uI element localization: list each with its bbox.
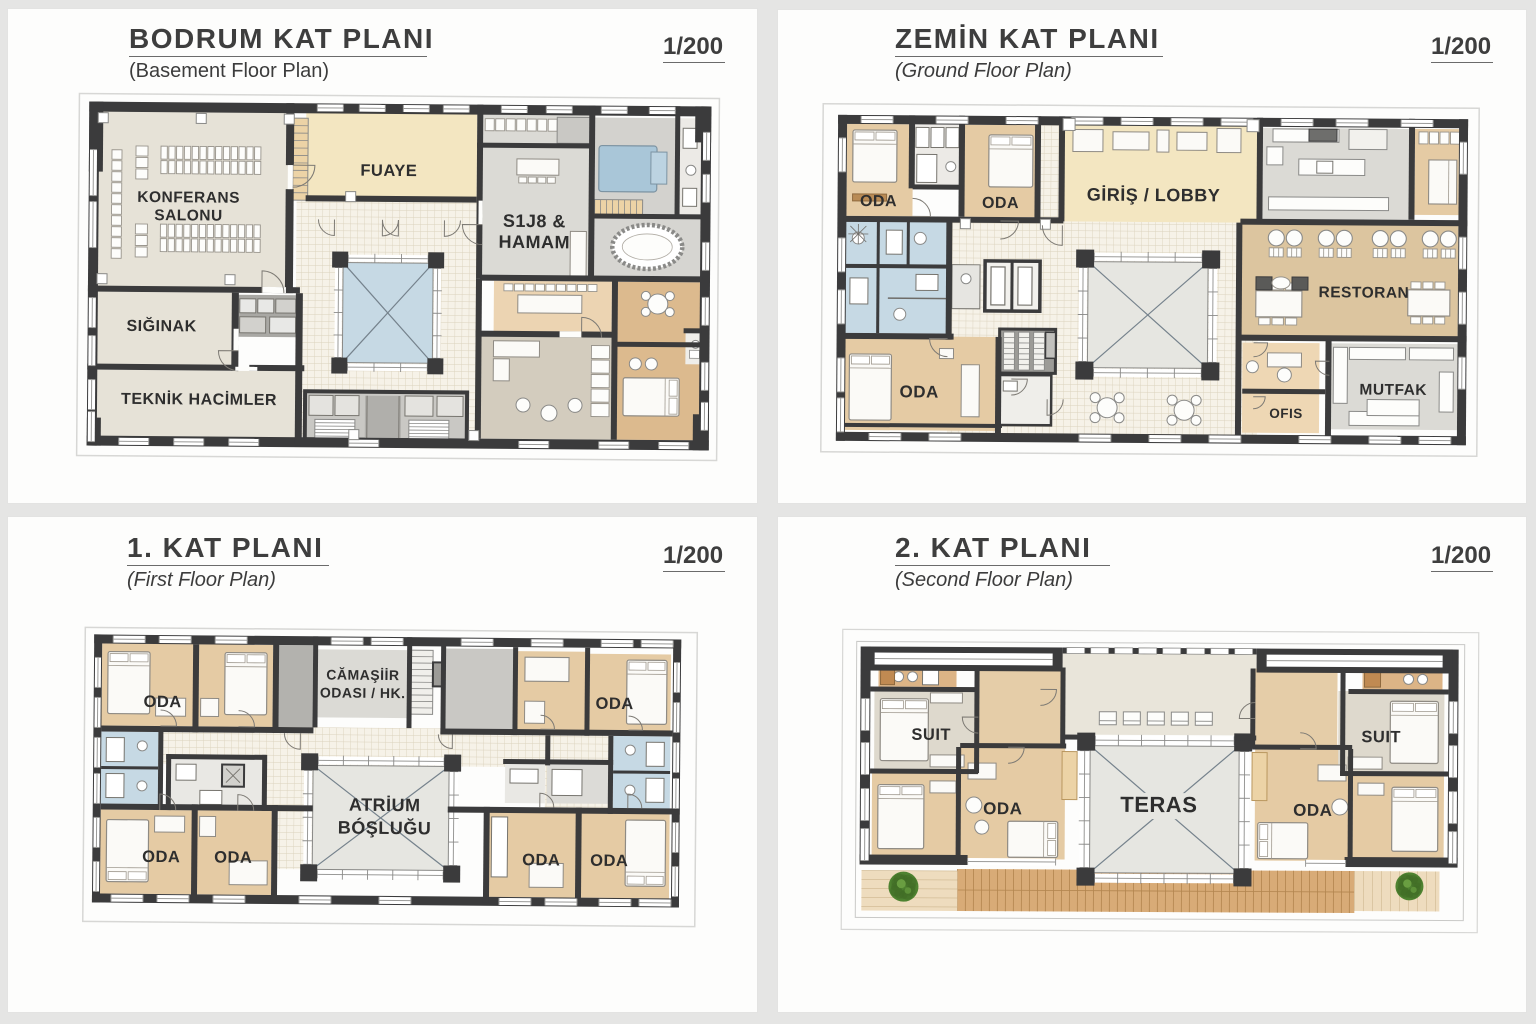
svg-text:ODA: ODA bbox=[144, 693, 182, 711]
svg-text:ATRİUM: ATRİUM bbox=[349, 795, 421, 816]
svg-text:TEKNİK HACİMLER: TEKNİK HACİMLER bbox=[121, 390, 277, 409]
svg-text:TERAS: TERAS bbox=[1120, 792, 1197, 817]
svg-text:HAMAM: HAMAM bbox=[498, 232, 570, 253]
svg-text:FUAYE: FUAYE bbox=[360, 162, 417, 180]
svg-text:ODA: ODA bbox=[983, 799, 1022, 818]
svg-text:ODA: ODA bbox=[142, 848, 180, 866]
svg-text:ODASI / HK.: ODASI / HK. bbox=[320, 684, 406, 701]
svg-text:ODA: ODA bbox=[1293, 801, 1332, 820]
svg-text:SALONU: SALONU bbox=[154, 207, 223, 225]
svg-text:ODA: ODA bbox=[900, 382, 939, 401]
svg-text:SUIT: SUIT bbox=[1361, 728, 1401, 746]
svg-text:ODA: ODA bbox=[596, 695, 634, 713]
svg-text:ODA: ODA bbox=[522, 851, 560, 869]
svg-text:ODA: ODA bbox=[860, 193, 897, 210]
svg-text:CĂMAŞİİR: CĂMAŞİİR bbox=[326, 666, 399, 683]
svg-text:SIĞINAK: SIĞINAK bbox=[126, 316, 196, 336]
svg-text:ODA: ODA bbox=[214, 848, 252, 866]
svg-text:GİRİŞ / LOBBY: GİRİŞ / LOBBY bbox=[1087, 185, 1221, 206]
svg-text:OFIS: OFIS bbox=[1269, 406, 1303, 421]
svg-text:MUTFAK: MUTFAK bbox=[1359, 381, 1427, 398]
svg-text:RESTORAN: RESTORAN bbox=[1319, 284, 1410, 302]
svg-text:KONFERANS: KONFERANS bbox=[137, 189, 240, 207]
svg-text:ODA: ODA bbox=[590, 852, 628, 870]
svg-text:BÓŞLUĞU: BÓŞLUĞU bbox=[338, 817, 432, 839]
svg-text:S1J8 &: S1J8 & bbox=[503, 211, 566, 231]
svg-text:SUIT: SUIT bbox=[911, 726, 951, 744]
svg-text:ODA: ODA bbox=[982, 195, 1019, 212]
